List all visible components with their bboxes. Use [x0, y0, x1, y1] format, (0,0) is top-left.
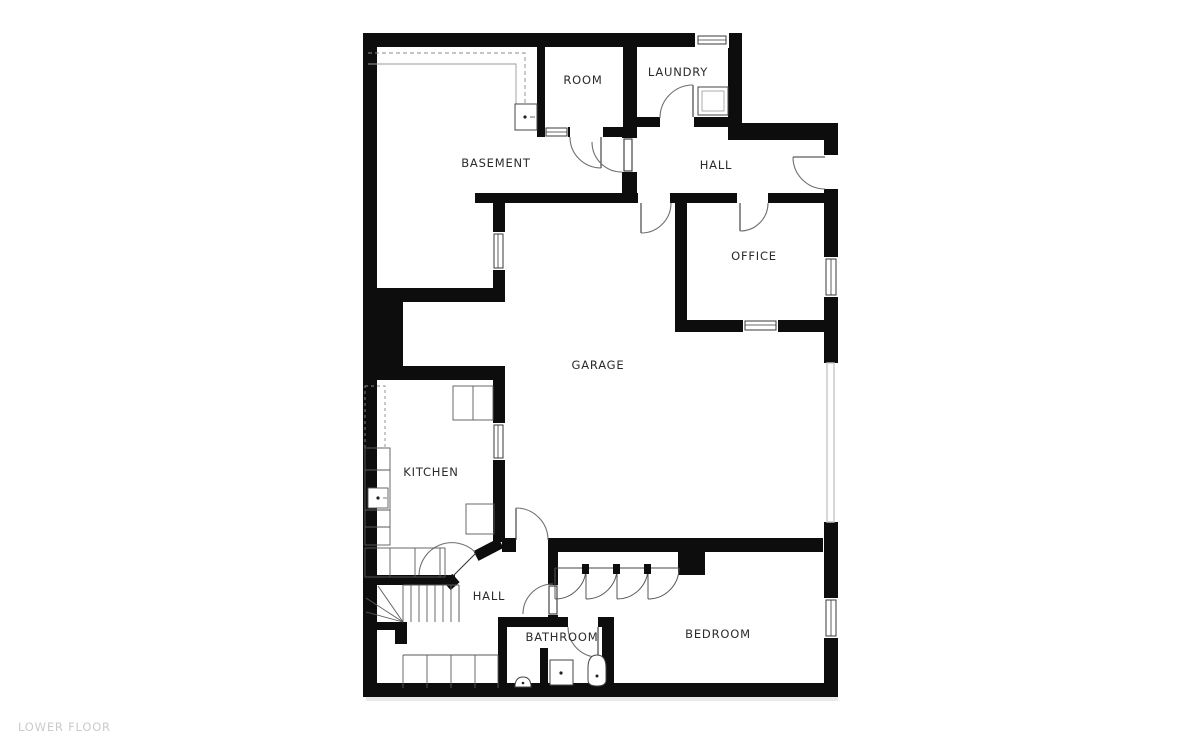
floor-plan-drawing: BASEMENT ROOM LAUNDRY HALL OFFICE GARAGE…	[0, 0, 1200, 750]
door-room	[570, 137, 601, 168]
kitchen-counters	[365, 386, 494, 577]
closet-doors	[555, 564, 679, 599]
room-label-laundry: LAUNDRY	[648, 65, 708, 79]
door-laundry	[660, 85, 693, 118]
room-label-basement: BASEMENT	[461, 156, 531, 170]
diagonal-wall	[447, 543, 501, 586]
window-kitchen-garage	[494, 425, 503, 458]
room-label-bedroom: BEDROOM	[685, 627, 751, 641]
water-heater-fixture	[515, 104, 537, 130]
window-basement-garage	[494, 234, 503, 268]
room-label-room: ROOM	[563, 73, 602, 87]
door-garage-hall	[516, 508, 548, 540]
room-label-kitchen: KITCHEN	[403, 465, 458, 479]
kitchen-island	[466, 504, 494, 534]
building-shadow	[366, 697, 838, 701]
window-room-bottom	[546, 128, 567, 136]
window-bedroom-right	[826, 600, 836, 636]
hand-sink	[515, 677, 531, 687]
laundry-closet	[698, 87, 728, 115]
room-labels: BASEMENT ROOM LAUNDRY HALL OFFICE GARAGE…	[403, 65, 777, 644]
basement-detail	[368, 53, 537, 130]
floor-title: LOWER FLOOR	[18, 720, 111, 734]
room-label-hall-lower: HALL	[473, 589, 506, 603]
bathroom-fixtures	[515, 655, 606, 687]
door-office	[740, 203, 768, 231]
door-bedroom	[523, 584, 557, 614]
room-label-office: OFFICE	[731, 249, 777, 263]
door-hall-basement	[592, 139, 632, 172]
bathroom-vanity	[550, 660, 573, 685]
floor-plan-canvas: BASEMENT ROOM LAUNDRY HALL OFFICE GARAGE…	[0, 0, 1200, 750]
door-hall-exterior	[793, 157, 825, 189]
room-label-garage: GARAGE	[572, 358, 625, 372]
toilet	[588, 655, 606, 686]
kitchen-sink	[368, 488, 388, 508]
window-office-bottom	[745, 321, 776, 330]
window-top-laundry	[698, 36, 726, 44]
room-label-bathroom: BATHROOM	[526, 630, 599, 644]
window-office-right	[826, 259, 836, 295]
room-label-hall-upper: HALL	[700, 158, 733, 172]
door-hall-garage	[641, 203, 671, 233]
